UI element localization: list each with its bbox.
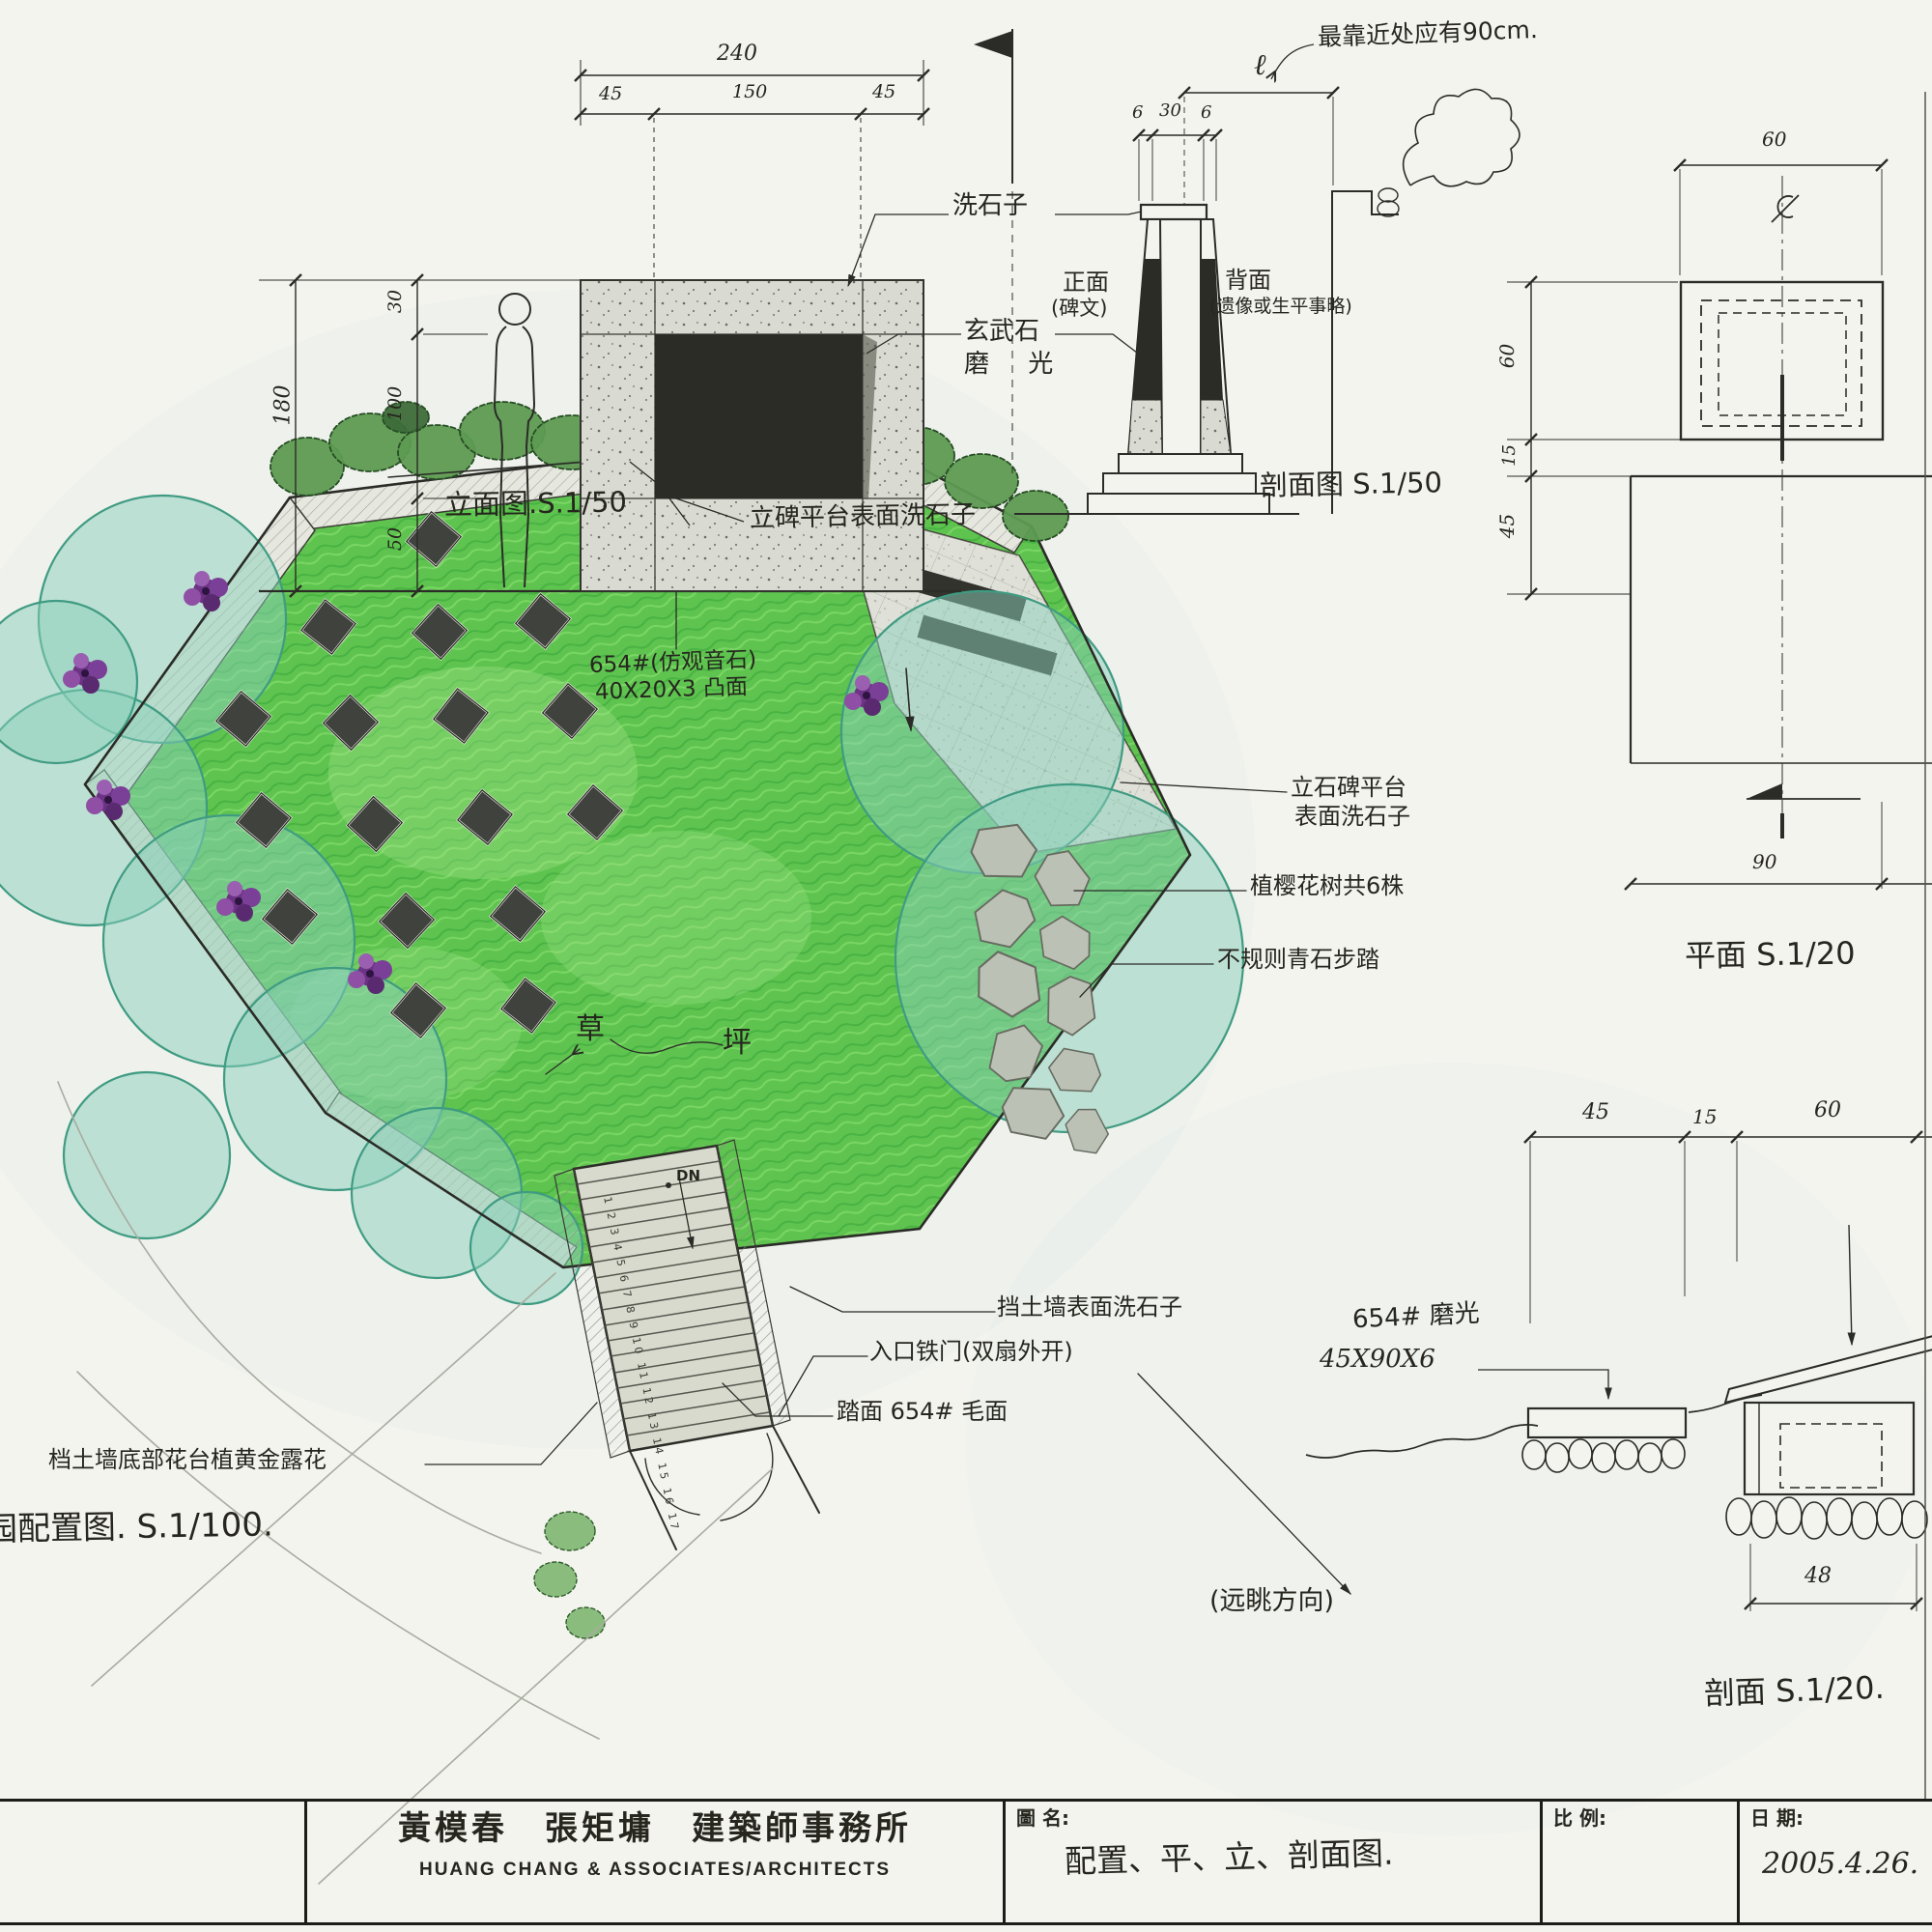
note-gate: 入口铁门(双扇外开)	[869, 1340, 1073, 1364]
s20-dim-15: 15	[1692, 1107, 1717, 1127]
label-front: 正面	[1063, 270, 1109, 295]
centerline-symbol	[1772, 195, 1799, 222]
scale-label: 比 例:	[1553, 1808, 1606, 1829]
plan-dim-15: 15	[1501, 444, 1520, 467]
drawing-name-label: 圖 名:	[1016, 1808, 1069, 1829]
stone-slab	[1528, 1408, 1686, 1437]
note-flower-bed: 档土墙底部花台植黄金露花	[48, 1448, 327, 1472]
elevation-title: 立面图.S.1/50	[444, 487, 627, 520]
note-bluestone: 不规则青石步踏	[1217, 948, 1379, 972]
note-view-direction: (远眺方向)	[1209, 1588, 1334, 1615]
dim-150: 150	[732, 83, 767, 102]
note-tread: 踏面 654# 毛面	[837, 1400, 1008, 1424]
label-front-sub: (碑文)	[1051, 298, 1107, 319]
section50-title: 剖面图 S.1/50	[1260, 468, 1442, 500]
stairs-dn-label: DN	[676, 1169, 700, 1184]
note-wall: 挡土墙表面洗石子	[997, 1295, 1182, 1320]
note-basalt: 玄武石	[964, 319, 1039, 345]
drawing-artwork	[0, 0, 1932, 1932]
wall-footing	[1745, 1403, 1914, 1494]
note-wash-pebble: 洗石子	[952, 193, 1028, 219]
label-back-sub: (遗像或生平事略)	[1209, 298, 1352, 317]
drawing-name-value: 配置、平、立、剖面图.	[1065, 1837, 1394, 1880]
label-grass-1: 草	[576, 1014, 605, 1045]
plan-dim-60-top: 60	[1762, 129, 1786, 150]
firm-name-cn: 黃模春 張矩墉 建築師事務所	[307, 1812, 1003, 1847]
s20-note-size: 45X90X6	[1320, 1347, 1435, 1373]
note-polished: 磨 光	[964, 352, 1068, 378]
note-stone-spec-1: 654#(仿观音石)	[589, 648, 757, 677]
dim-30b: 30	[1159, 102, 1181, 121]
label-grass-2: 坪	[723, 1028, 752, 1059]
dim-6a: 6	[1132, 104, 1143, 123]
drawing-sheet: 240 45 150 45 180 30 100 50 洗石子 玄武石 磨 光 …	[0, 0, 1932, 1932]
s20-dim-60: 60	[1814, 1099, 1841, 1122]
dim-45-right: 45	[872, 83, 895, 102]
dim-6b: 6	[1201, 104, 1211, 123]
dim-50: 50	[386, 527, 406, 551]
dim-240: 240	[717, 43, 757, 65]
firm-name-en: HUANG CHANG & ASSOCIATES/ARCHITECTS	[307, 1861, 1003, 1880]
bush-sketch	[1404, 89, 1520, 185]
retaining-wall-section	[1332, 191, 1399, 514]
plan-dim-60-left: 60	[1497, 344, 1518, 368]
dim-45-left: 45	[599, 85, 622, 104]
note-platform-1: 立石碑平台	[1291, 776, 1406, 800]
date-value: 2005.4.26.	[1762, 1849, 1918, 1880]
date-label: 日 期:	[1750, 1808, 1804, 1829]
site-plan-title: 园配置图. S.1/100.	[0, 1508, 273, 1548]
label-back: 背面	[1225, 269, 1271, 293]
dim-180: 180	[271, 385, 294, 426]
dim-100: 100	[386, 386, 406, 421]
s20-dim-45: 45	[1582, 1101, 1609, 1123]
monument-base-steps	[1088, 454, 1269, 514]
slope-planting	[534, 1512, 605, 1638]
plan-dim-45: 45	[1497, 514, 1518, 538]
note-platform-surface: 立碑平台表面洗石子	[750, 502, 976, 532]
note-platform-2: 表面洗石子	[1294, 805, 1410, 829]
note-stone-spec-2: 40X20X3 凸面	[595, 675, 749, 704]
monument-plan-detail	[1507, 159, 1932, 890]
plan-dim-ticks	[1525, 159, 1888, 890]
section20-title: 剖面 S.1/20.	[1703, 1672, 1885, 1711]
basalt-panel	[655, 334, 863, 498]
s20-dim-48: 48	[1804, 1565, 1832, 1587]
dim-30: 30	[386, 290, 406, 313]
dim-ell: ℓ	[1254, 50, 1266, 81]
note-cherry: 植樱花树共6株	[1250, 874, 1404, 898]
plan20-title: 平面 S.1/20	[1685, 937, 1856, 973]
plan-dim-90: 90	[1752, 852, 1776, 872]
